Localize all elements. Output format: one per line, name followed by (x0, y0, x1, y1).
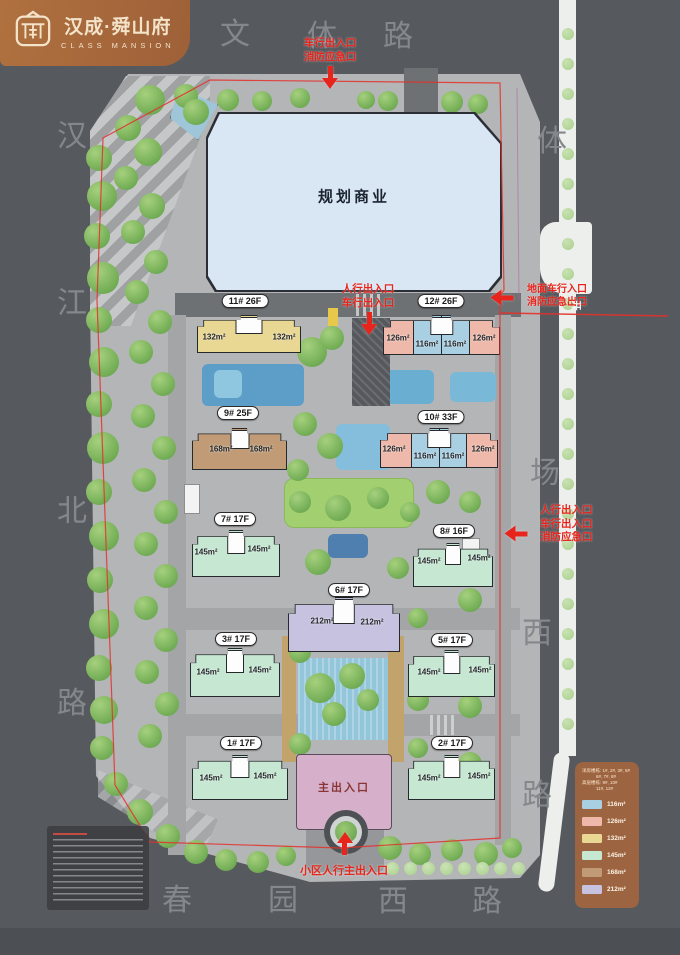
unit-label: 145m² (253, 772, 276, 781)
legend-item: 116m² (582, 800, 635, 809)
disclaimer-text-block (47, 826, 149, 910)
unit-label: 145m² (199, 774, 222, 783)
unit-label: 168m² (209, 445, 232, 454)
building-6-label: 6# 17F (328, 583, 370, 597)
building-8-label: 8# 16F (433, 524, 475, 538)
unit-label: 145m² (196, 668, 219, 677)
legend-item: 126m² (582, 817, 635, 826)
legend-item: 212m² (582, 885, 635, 894)
brand-title: 汉成·舜山府 (64, 12, 171, 39)
unit-label: 145m² (248, 666, 271, 675)
legend-item: 145m² (582, 851, 635, 860)
main-entrance-label: 主出入口 (318, 779, 370, 795)
unit-label: 145m² (468, 666, 491, 675)
legend-item: 168m² (582, 868, 635, 877)
gate-note-bottom: 小区人行主出入口 (300, 864, 388, 878)
building-10-label: 10# 33F (417, 410, 464, 424)
brand-subtitle: CLASS MANSION (61, 41, 175, 50)
area-legend: 洋房楼栋: 1#, 2#, 3#, 5# 6#, 7#, 8# 高层楼栋: 9#… (575, 762, 639, 908)
unit-label: 116m² (416, 340, 439, 349)
gate-note-mid: 人行出入口车行出入口 (342, 283, 395, 310)
logo-seal-icon (14, 10, 52, 53)
unit-label: 116m² (442, 452, 465, 461)
unit-label: 116m² (414, 452, 437, 461)
site-plan: 规划商业 主出入口 11# 26F 12# 26F 9# 25F 10# 33F… (0, 0, 680, 955)
unit-label: 145m² (467, 772, 490, 781)
arrow-down-icon (361, 312, 377, 335)
building-7-label: 7# 17F (214, 512, 256, 526)
arrow-left-icon (491, 290, 514, 306)
unit-label: 132m² (272, 333, 295, 342)
unit-label: 212m² (360, 618, 383, 627)
road-char: 开 (570, 301, 585, 311)
building-9-label: 9# 25F (217, 406, 259, 420)
brand-logo: 汉成·舜山府 CLASS MANSION (0, 0, 190, 66)
unit-label: 145m² (467, 554, 490, 563)
arrow-up-icon (337, 832, 353, 855)
building-12-label: 12# 26F (417, 294, 464, 308)
unit-label: 145m² (417, 557, 440, 566)
building-3-label: 3# 17F (215, 632, 257, 646)
legend-item: 132m² (582, 834, 635, 843)
arrow-down-icon (322, 66, 338, 89)
unit-label: 145m² (417, 774, 440, 783)
unit-label: 126m² (382, 445, 405, 454)
arrow-left-icon (505, 526, 528, 542)
unit-label: 168m² (249, 445, 272, 454)
gate-note-right-mid: 人行出入口车行出入口消防应急口 (540, 504, 593, 545)
unit-label: 145m² (417, 668, 440, 677)
unit-label: 145m² (194, 548, 217, 557)
unit-label: 126m² (472, 334, 495, 343)
building-11-label: 11# 26F (222, 294, 269, 308)
unit-label: 212m² (310, 617, 333, 626)
unit-label: 132m² (202, 333, 225, 342)
unit-label: 116m² (444, 340, 467, 349)
unit-label: 145m² (247, 545, 270, 554)
gate-note-top: 车行出入口消防应急口 (304, 37, 357, 64)
unit-label: 126m² (471, 445, 494, 454)
building-5-label: 5# 17F (431, 633, 473, 647)
unit-label: 126m² (386, 334, 409, 343)
building-1-label: 1# 17F (220, 736, 262, 750)
building-2-label: 2# 17F (431, 736, 473, 750)
